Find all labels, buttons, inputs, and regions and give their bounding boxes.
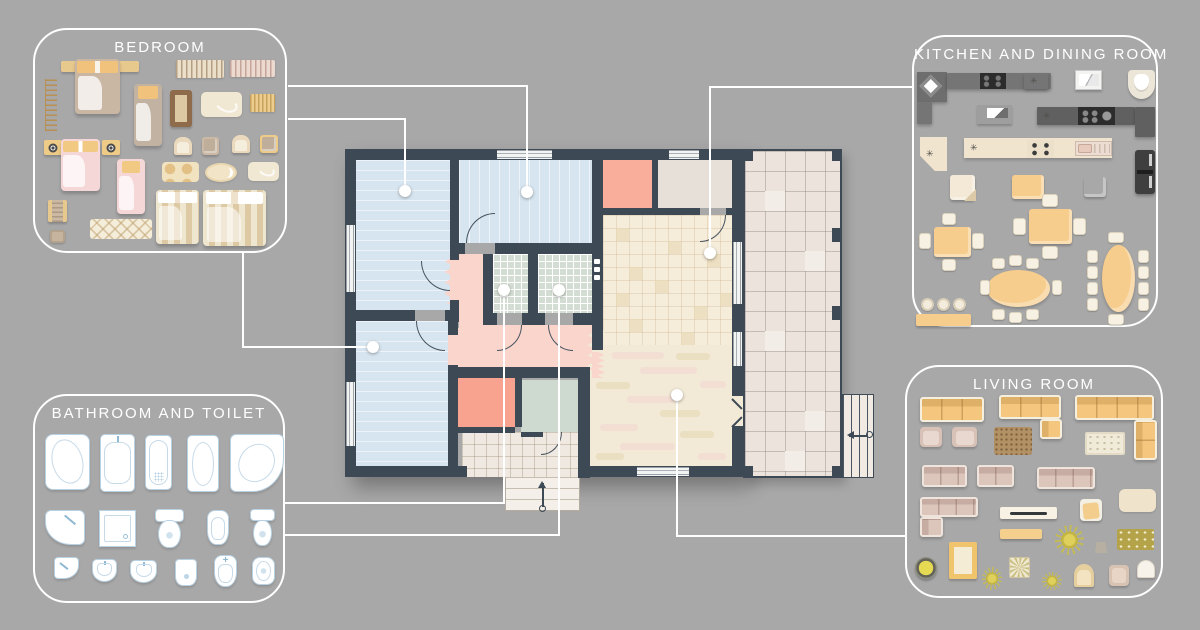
callout-marker-kitchen	[704, 247, 716, 259]
callout-line	[288, 118, 405, 120]
callout-lines	[0, 0, 1200, 630]
callout-line	[558, 292, 560, 536]
callout-line	[676, 395, 678, 537]
callout-marker-bedroom-1	[399, 185, 411, 197]
callout-line	[526, 85, 528, 194]
callout-marker-bathroom-1	[498, 284, 510, 296]
callout-line	[709, 86, 711, 253]
callout-line	[288, 85, 527, 87]
callout-line	[710, 86, 912, 88]
callout-line	[242, 253, 244, 347]
callout-line	[285, 502, 504, 504]
callout-marker-living	[671, 389, 683, 401]
floor-plan-infographic: BEDROOM KITCHEN AND DINING ROOM BATHROOM…	[0, 0, 1200, 630]
callout-marker-bathroom-2	[553, 284, 565, 296]
callout-line	[503, 292, 505, 504]
callout-marker-bedroom-2	[521, 186, 533, 198]
callout-line	[677, 535, 905, 537]
callout-line	[285, 534, 559, 536]
callout-line	[404, 118, 406, 191]
callout-line	[242, 346, 373, 348]
callout-marker-bedroom-3	[367, 341, 379, 353]
